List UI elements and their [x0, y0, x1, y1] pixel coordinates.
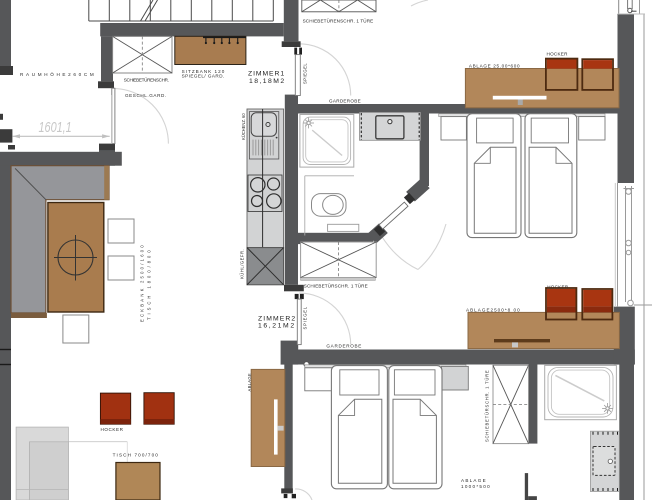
svg-text:ECKBANK 2500/1600: ECKBANK 2500/1600	[140, 245, 145, 322]
svg-text:KÜCHENZ. 60: KÜCHENZ. 60	[241, 113, 246, 140]
svg-text:ABLAGE 25.00*600: ABLAGE 25.00*600	[469, 64, 520, 69]
svg-text:RAUMHÖHE260CM: RAUMHÖHE260CM	[20, 71, 94, 77]
svg-text:ZIMMER1: ZIMMER1	[248, 71, 285, 78]
svg-text:SPIEGEL/ GARD.: SPIEGEL/ GARD.	[182, 74, 225, 79]
svg-text:1601,1: 1601,1	[39, 118, 72, 135]
svg-text:SCHIEBETÜRENSCHR.: SCHIEBETÜRENSCHR.	[124, 77, 170, 83]
svg-text:ABLAGE: ABLAGE	[247, 373, 252, 392]
svg-text:HOCKER: HOCKER	[101, 427, 124, 432]
svg-text:18,18M2: 18,18M2	[249, 78, 285, 85]
svg-text:GESCHL.GARD.: GESCHL.GARD.	[125, 93, 167, 98]
svg-text:16,21M2: 16,21M2	[258, 323, 295, 330]
svg-text:ZIMMER2: ZIMMER2	[258, 316, 296, 323]
svg-text:ABLAGE2500*8 00: ABLAGE2500*8 00	[466, 308, 520, 313]
svg-text:ABLAGE: ABLAGE	[461, 478, 486, 483]
svg-text:KÜHL/GEFR.: KÜHL/GEFR.	[240, 249, 245, 279]
svg-text:GARDEROBE: GARDEROBE	[329, 98, 361, 103]
svg-text:TISCH 700/700: TISCH 700/700	[113, 453, 159, 458]
svg-text:GARDEROBE: GARDEROBE	[326, 344, 361, 349]
svg-text:SCHIEBETÜRENSCHR. 1 TÜRE: SCHIEBETÜRENSCHR. 1 TÜRE	[303, 18, 374, 24]
svg-text:HOCKER: HOCKER	[547, 52, 569, 57]
svg-text:SCHIEBETÜRSCHR. 1 TÜRE: SCHIEBETÜRSCHR. 1 TÜRE	[304, 282, 368, 288]
svg-text:1000*500: 1000*500	[461, 484, 490, 489]
svg-text:HOCKER: HOCKER	[547, 285, 569, 290]
svg-text:SCHIEBETÜRSCHR. 1 TÜRE: SCHIEBETÜRSCHR. 1 TÜRE	[485, 370, 490, 442]
svg-text:SPIEGEL: SPIEGEL	[303, 306, 308, 329]
svg-text:SPIEGEL: SPIEGEL	[303, 63, 308, 84]
